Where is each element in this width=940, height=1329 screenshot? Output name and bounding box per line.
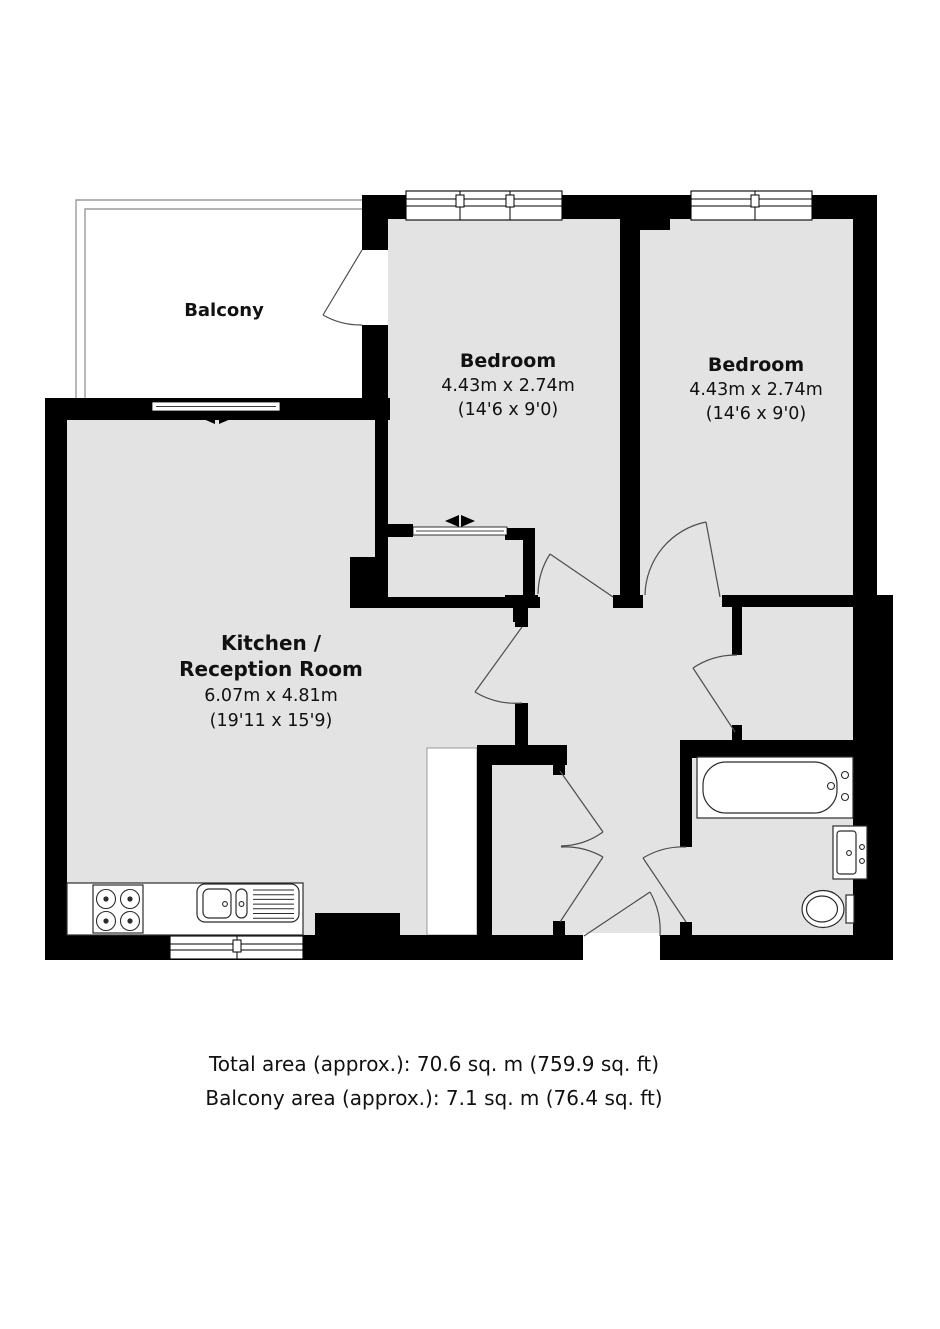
wall-bottom-chunk (315, 913, 400, 935)
bedroom2-name: Bedroom (708, 354, 804, 376)
balcony-area-text: Balcony area (approx.): 7.1 sq. m (76.4 … (205, 1086, 662, 1110)
wash-basin-icon (833, 826, 867, 879)
void-area (427, 748, 477, 935)
wall-bedroom2-notch (640, 219, 670, 230)
wall-closet-stub-bottom (553, 921, 565, 935)
wall-cupboard-stub-bottom (732, 725, 742, 740)
bedroom2-metric: 4.43m x 2.74m (689, 380, 823, 400)
bedroom1-label: Bedroom 4.43m x 2.74m (14'6 x 9'0) (441, 350, 575, 420)
entrance-opening (583, 933, 660, 960)
floorplan-page: Balcony Bedroom 4.43m x 2.74m (14'6 x 9'… (0, 0, 940, 1329)
wall-balcony-bedroom-top (362, 195, 388, 250)
bedroom2-label: Bedroom 4.43m x 2.74m (14'6 x 9'0) (689, 354, 823, 424)
bedroom1-name: Bedroom (460, 350, 556, 372)
wall-bathroom-top (680, 740, 853, 758)
kitchen-imperial: (19'11 x 15'9) (210, 711, 333, 731)
wall-left (45, 398, 67, 960)
bedroom1-window (406, 191, 562, 220)
bedroom1-imperial: (14'6 x 9'0) (458, 400, 558, 420)
wall-right-upper (853, 195, 877, 607)
bathtub-icon (697, 757, 853, 818)
balcony-railing (76, 200, 362, 398)
bedroom2-imperial: (14'6 x 9'0) (706, 404, 806, 424)
wall-hall-stub (515, 610, 528, 627)
hob-icon (93, 885, 143, 933)
balcony-label: Balcony (184, 300, 264, 321)
floorplan-canvas: Balcony Bedroom 4.43m x 2.74m (14'6 x 9'… (0, 0, 940, 1329)
wall-wardrobe-block (350, 557, 388, 608)
kitchen-metric: 6.07m x 4.81m (204, 686, 338, 706)
bedroom1-metric: 4.43m x 2.74m (441, 376, 575, 396)
wall-right-lower (853, 595, 893, 960)
floor-areas (45, 195, 875, 960)
wall-bathroom-left-stub (680, 922, 692, 935)
kitchen-fixtures (67, 883, 303, 935)
total-area-text: Total area (approx.): 70.6 sq. m (759.9 … (208, 1052, 659, 1076)
footer: Total area (approx.): 70.6 sq. m (759.9 … (205, 1052, 662, 1110)
wall-void-right (477, 765, 492, 937)
wall-bedroom-divider (620, 219, 640, 595)
kitchen-window (170, 936, 303, 959)
bedroom2-window (691, 191, 812, 220)
wall-bathroom-left (680, 758, 692, 847)
wall-divider-foot (613, 595, 643, 608)
wall-kitchen-right-upper (375, 420, 388, 560)
balcony-door (323, 250, 362, 325)
wall-balcony-bedroom-bottom (362, 325, 388, 420)
wall-corner-v (523, 540, 535, 598)
kitchen-name-line1: Kitchen / (221, 631, 322, 655)
wall-junction-block (477, 745, 567, 765)
toilet-icon (802, 891, 854, 928)
wall-corner-h (505, 528, 535, 540)
wall-closet-stub-top (553, 765, 565, 775)
wall-bedroom2-bottom (722, 595, 853, 607)
wall-hall-lower (515, 703, 528, 747)
kitchen-name-line2: Reception Room (179, 657, 363, 681)
sink-icon (197, 884, 299, 922)
wall-cupboard-stub-top (732, 607, 742, 655)
wall-bedroom1-stub (388, 524, 413, 537)
